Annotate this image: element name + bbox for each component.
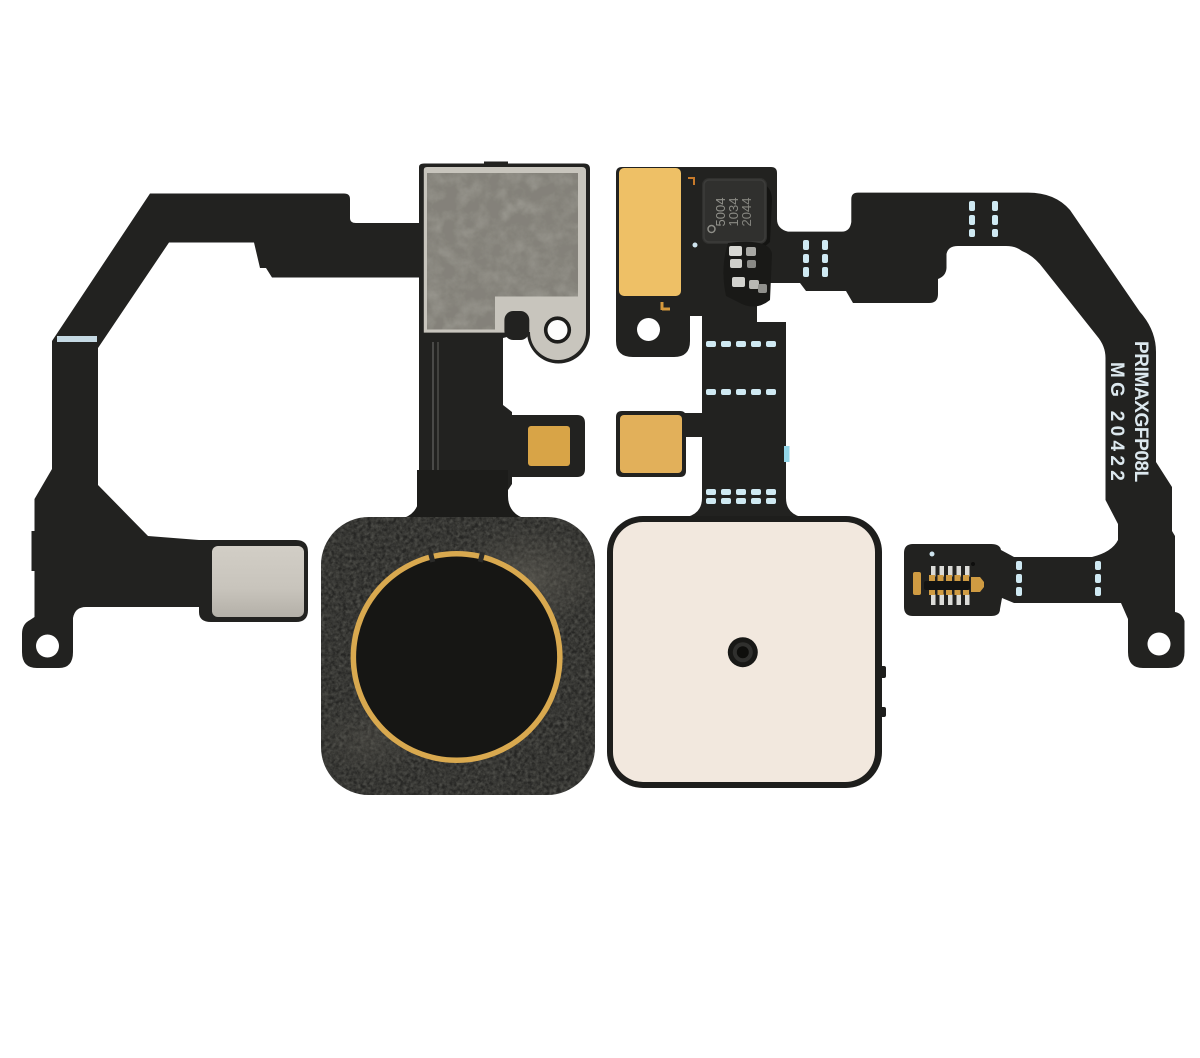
svg-text:MG 20422: MG 20422 [1106,362,1127,485]
svg-text:PRIMAXGFP08L: PRIMAXGFP08L [1130,341,1151,483]
svg-text:2044: 2044 [739,198,754,227]
